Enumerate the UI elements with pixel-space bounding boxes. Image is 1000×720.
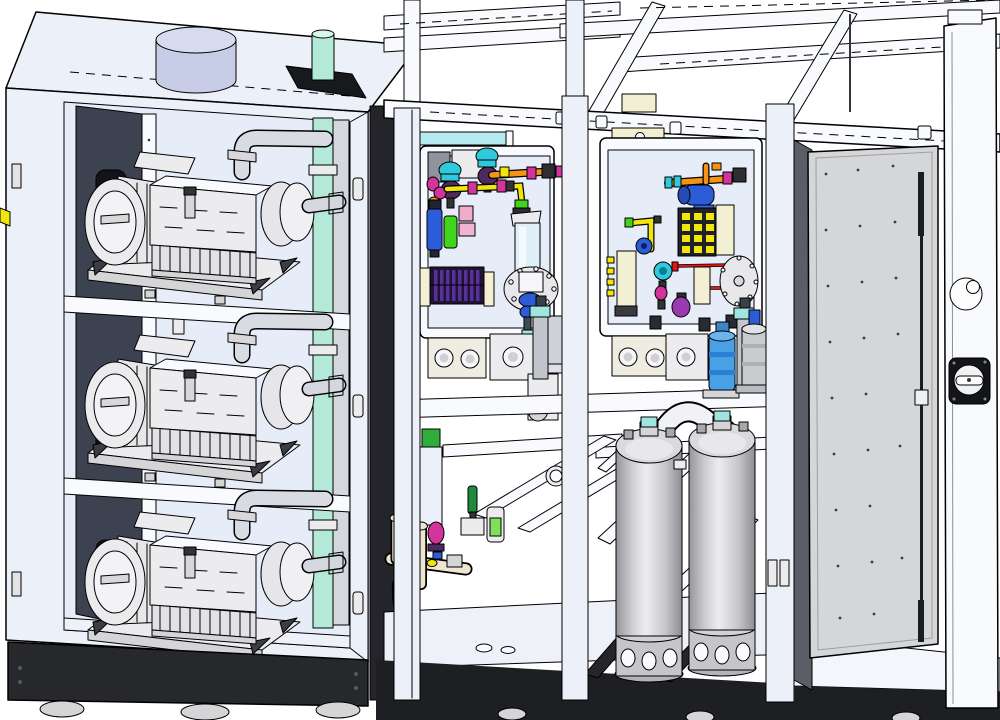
stile-latch: [353, 178, 363, 200]
beige-column: [694, 267, 710, 304]
teal-pipe-stub: [312, 30, 334, 80]
door-latch: [915, 390, 928, 405]
leveling-foot: [892, 712, 920, 720]
door-hinge: [768, 560, 777, 586]
leveling-foot: [181, 704, 229, 720]
frame-post-right: [766, 104, 794, 702]
filter-tank-right: [688, 411, 756, 676]
open-door-panel: [808, 146, 938, 658]
stile-latch: [353, 395, 363, 417]
door-hinge: [780, 560, 789, 586]
frame-post-center: [562, 96, 588, 700]
purple-heater-coil: [418, 267, 494, 306]
main-disconnect-switch: [949, 358, 990, 404]
frame-top-tab: [948, 10, 982, 24]
edge-latch: [12, 164, 21, 188]
pipe-clamp: [309, 520, 337, 530]
blue-round-valve: [636, 238, 652, 254]
cad-render: Isometric 3D CAD rendering of a modular …: [0, 0, 1000, 720]
exhaust-duct-collar: [156, 27, 236, 93]
pipe-clamp: [309, 165, 337, 175]
teal-exhaust-riser: [309, 118, 337, 628]
leveling-foot: [498, 708, 526, 720]
green-label: [490, 518, 501, 536]
filter-tank-left: [615, 417, 686, 682]
cyan-bar: [414, 132, 510, 145]
pipe-clamp: [309, 345, 337, 355]
floor-hole: [501, 647, 515, 654]
teal-cap: [714, 411, 730, 421]
frame-post-center-upper: [566, 0, 584, 98]
flange: [720, 256, 758, 306]
frame-post-left: [394, 108, 420, 700]
flow-sensor: [487, 507, 504, 542]
tank-body: [689, 438, 755, 630]
leveling-foot: [686, 711, 714, 720]
leveling-foot: [316, 702, 360, 718]
frame-post: [404, 0, 420, 104]
cad-viewport: Isometric 3D CAD rendering of a modular …: [0, 0, 1000, 720]
frame-stud: [918, 126, 931, 139]
filter-cartridge: [530, 296, 550, 379]
yellow-valve-manifold: [678, 205, 734, 256]
green-pipe-stub: [422, 429, 440, 447]
left-pump-cabinet: [0, 12, 418, 720]
stile-latch: [353, 592, 363, 614]
instrument-panel-left: [418, 146, 574, 338]
leveling-foot: [40, 701, 84, 717]
edge-latch: [12, 572, 21, 596]
floor-hole: [476, 644, 492, 652]
instrument-panel-right: [600, 138, 762, 336]
cream-plate: [622, 94, 656, 112]
door-frame-edge: [944, 10, 998, 708]
teal-cap: [641, 417, 657, 427]
module-gap: [370, 106, 394, 700]
tank-body: [616, 444, 682, 636]
